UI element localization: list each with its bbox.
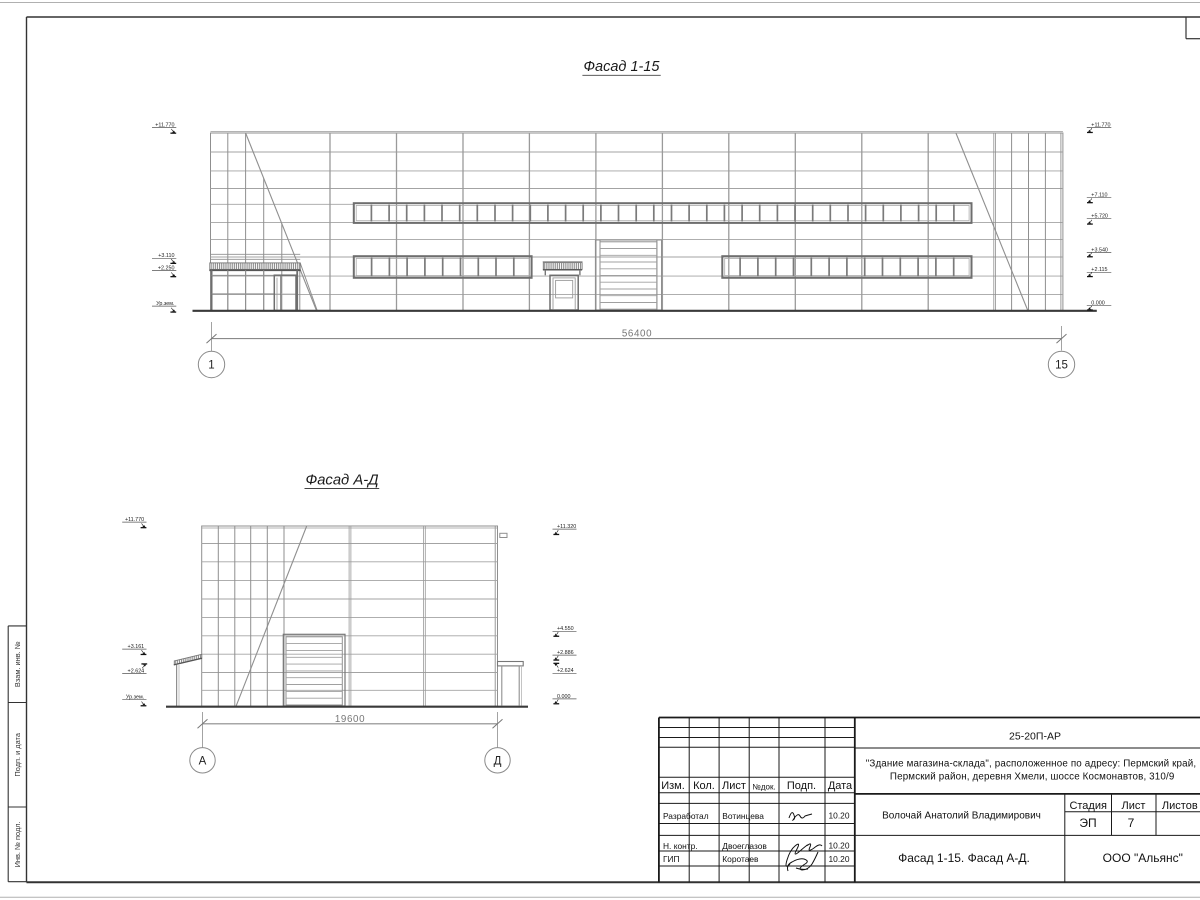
svg-text:Лист: Лист [722,780,746,792]
svg-text:№док.: №док. [752,783,775,792]
svg-text:"Здание магазина-склада", расп: "Здание магазина-склада", расположенное … [866,758,1197,769]
svg-text:Изм.: Изм. [661,780,685,792]
svg-text:1: 1 [208,360,214,372]
svg-text:Инв. № подл.: Инв. № подл. [13,821,22,867]
svg-text:Двоеглазов: Двоеглазов [722,841,767,851]
svg-text:10.20: 10.20 [829,854,850,864]
svg-text:10.20: 10.20 [829,841,850,851]
svg-text:Взам. инв. №: Взам. инв. № [13,641,22,687]
svg-text:Фасад 1-15. Фасад А-Д.: Фасад 1-15. Фасад А-Д. [898,851,1030,865]
svg-text:Д: Д [494,755,502,767]
svg-text:25-20П-АР: 25-20П-АР [1009,730,1061,742]
svg-text:Лист: Лист [1122,800,1146,812]
svg-text:Листов: Листов [1162,800,1198,812]
svg-text:Н. контр.: Н. контр. [663,841,698,851]
svg-text:А: А [199,755,207,767]
svg-text:Волочай Анатолий Владимирович: Волочай Анатолий Владимирович [882,811,1041,822]
svg-text:56400: 56400 [622,328,652,339]
svg-text:Дата: Дата [828,780,853,792]
svg-text:7: 7 [1128,816,1135,830]
svg-text:10.20: 10.20 [829,811,850,821]
svg-text:ООО "Альянс": ООО "Альянс" [1103,851,1183,865]
svg-text:15: 15 [1055,360,1068,372]
svg-text:Подп. и дата: Подп. и дата [13,732,22,776]
svg-text:Коротаев: Коротаев [722,854,759,864]
svg-text:Стадия: Стадия [1069,800,1107,812]
svg-text:Фасад А-Д: Фасад А-Д [305,472,378,488]
svg-text:ЭП: ЭП [1079,816,1096,830]
svg-text:Кол.: Кол. [693,780,715,792]
svg-text:19600: 19600 [335,714,365,725]
svg-text:Разработал: Разработал [663,811,709,821]
svg-text:Подп.: Подп. [787,780,816,792]
svg-text:Пермский район, деревня Хмели,: Пермский район, деревня Хмели, шоссе Кос… [890,771,1175,782]
svg-text:Фасад 1-15: Фасад 1-15 [584,59,661,75]
svg-text:ГИП: ГИП [663,854,680,864]
svg-text:Вотинцева: Вотинцева [722,811,764,821]
